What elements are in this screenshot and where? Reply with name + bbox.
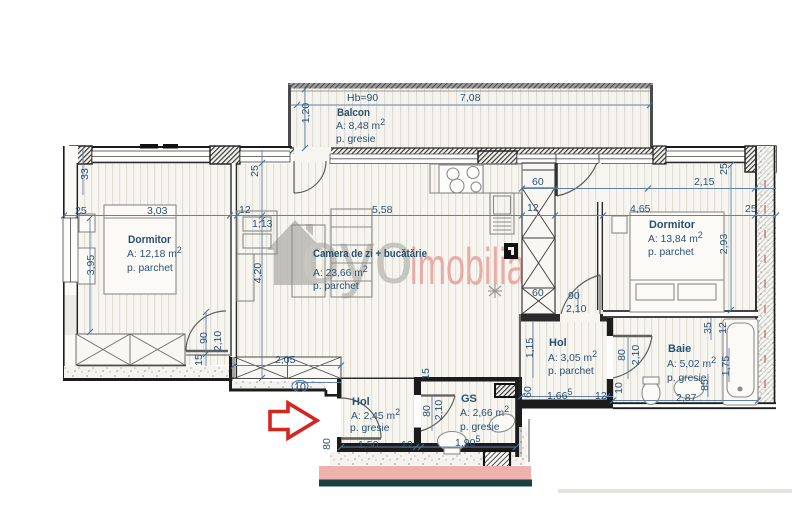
svg-text:60: 60	[522, 386, 534, 398]
svg-text:p. parchet: p. parchet	[648, 247, 694, 258]
svg-text:5,58: 5,58	[372, 204, 393, 216]
svg-text:GS: GS	[461, 393, 477, 405]
svg-text:12: 12	[717, 322, 729, 334]
svg-text:90: 90	[568, 290, 580, 302]
svg-text:2,10: 2,10	[566, 303, 587, 315]
svg-text:60: 60	[532, 176, 544, 188]
svg-text:2,87: 2,87	[676, 392, 697, 404]
svg-text:3,03: 3,03	[147, 205, 168, 217]
svg-text:35: 35	[702, 322, 714, 334]
svg-text:1,20: 1,20	[300, 103, 312, 124]
svg-text:4,20: 4,20	[252, 263, 264, 284]
svg-text:60: 60	[532, 287, 544, 299]
svg-text:25: 25	[249, 165, 261, 177]
svg-text:25: 25	[745, 203, 757, 215]
svg-text:3,95: 3,95	[85, 255, 97, 276]
svg-text:p. gresie: p. gresie	[350, 423, 390, 434]
svg-text:Baie: Baie	[668, 343, 691, 355]
svg-text:80: 80	[616, 349, 628, 361]
svg-text:Hol: Hol	[549, 337, 567, 349]
svg-text:1,15: 1,15	[524, 338, 536, 359]
svg-text:25: 25	[718, 163, 730, 175]
svg-text:p. gresie: p. gresie	[336, 134, 376, 145]
svg-text:2,15: 2,15	[694, 176, 715, 188]
svg-text:p. gresie: p. gresie	[460, 422, 500, 433]
svg-text:2,10: 2,10	[630, 345, 642, 366]
svg-text:33: 33	[79, 168, 91, 180]
svg-text:80: 80	[321, 438, 333, 450]
svg-text:Hb=90: Hb=90	[347, 92, 378, 104]
svg-text:85: 85	[699, 379, 711, 391]
svg-text:Dormitor: Dormitor	[649, 219, 696, 231]
svg-text:4,65: 4,65	[630, 203, 651, 215]
svg-text:2,05: 2,05	[275, 354, 296, 366]
svg-text:12: 12	[401, 439, 413, 451]
svg-text:90: 90	[198, 332, 210, 344]
svg-text:2,10: 2,10	[212, 331, 224, 352]
svg-text:80: 80	[421, 405, 433, 417]
svg-text:Dormitor: Dormitor	[128, 234, 172, 246]
svg-text:1,75: 1,75	[720, 356, 732, 377]
svg-text:2,93: 2,93	[718, 234, 730, 255]
svg-text:Balcon: Balcon	[337, 107, 370, 119]
svg-text:1,13: 1,13	[252, 218, 273, 230]
svg-text:10: 10	[294, 381, 306, 393]
svg-text:Hol: Hol	[352, 396, 370, 408]
svg-text:p. parchet: p. parchet	[127, 263, 173, 274]
svg-text:25: 25	[75, 205, 87, 217]
svg-text:12: 12	[239, 204, 251, 216]
svg-text:15: 15	[193, 354, 205, 366]
svg-text:p. parchet: p. parchet	[548, 366, 594, 377]
svg-text:7,08: 7,08	[460, 92, 481, 104]
svg-text:12: 12	[595, 390, 607, 402]
svg-text:1,50: 1,50	[358, 439, 379, 451]
svg-text:2,10: 2,10	[433, 400, 445, 421]
svg-text:15: 15	[420, 368, 432, 380]
svg-text:Camera de zi + bucătărie: Camera de zi + bucătărie	[313, 248, 427, 260]
svg-text:10: 10	[613, 382, 625, 394]
svg-text:12: 12	[527, 202, 539, 214]
svg-text:p. parchet: p. parchet	[313, 281, 359, 292]
